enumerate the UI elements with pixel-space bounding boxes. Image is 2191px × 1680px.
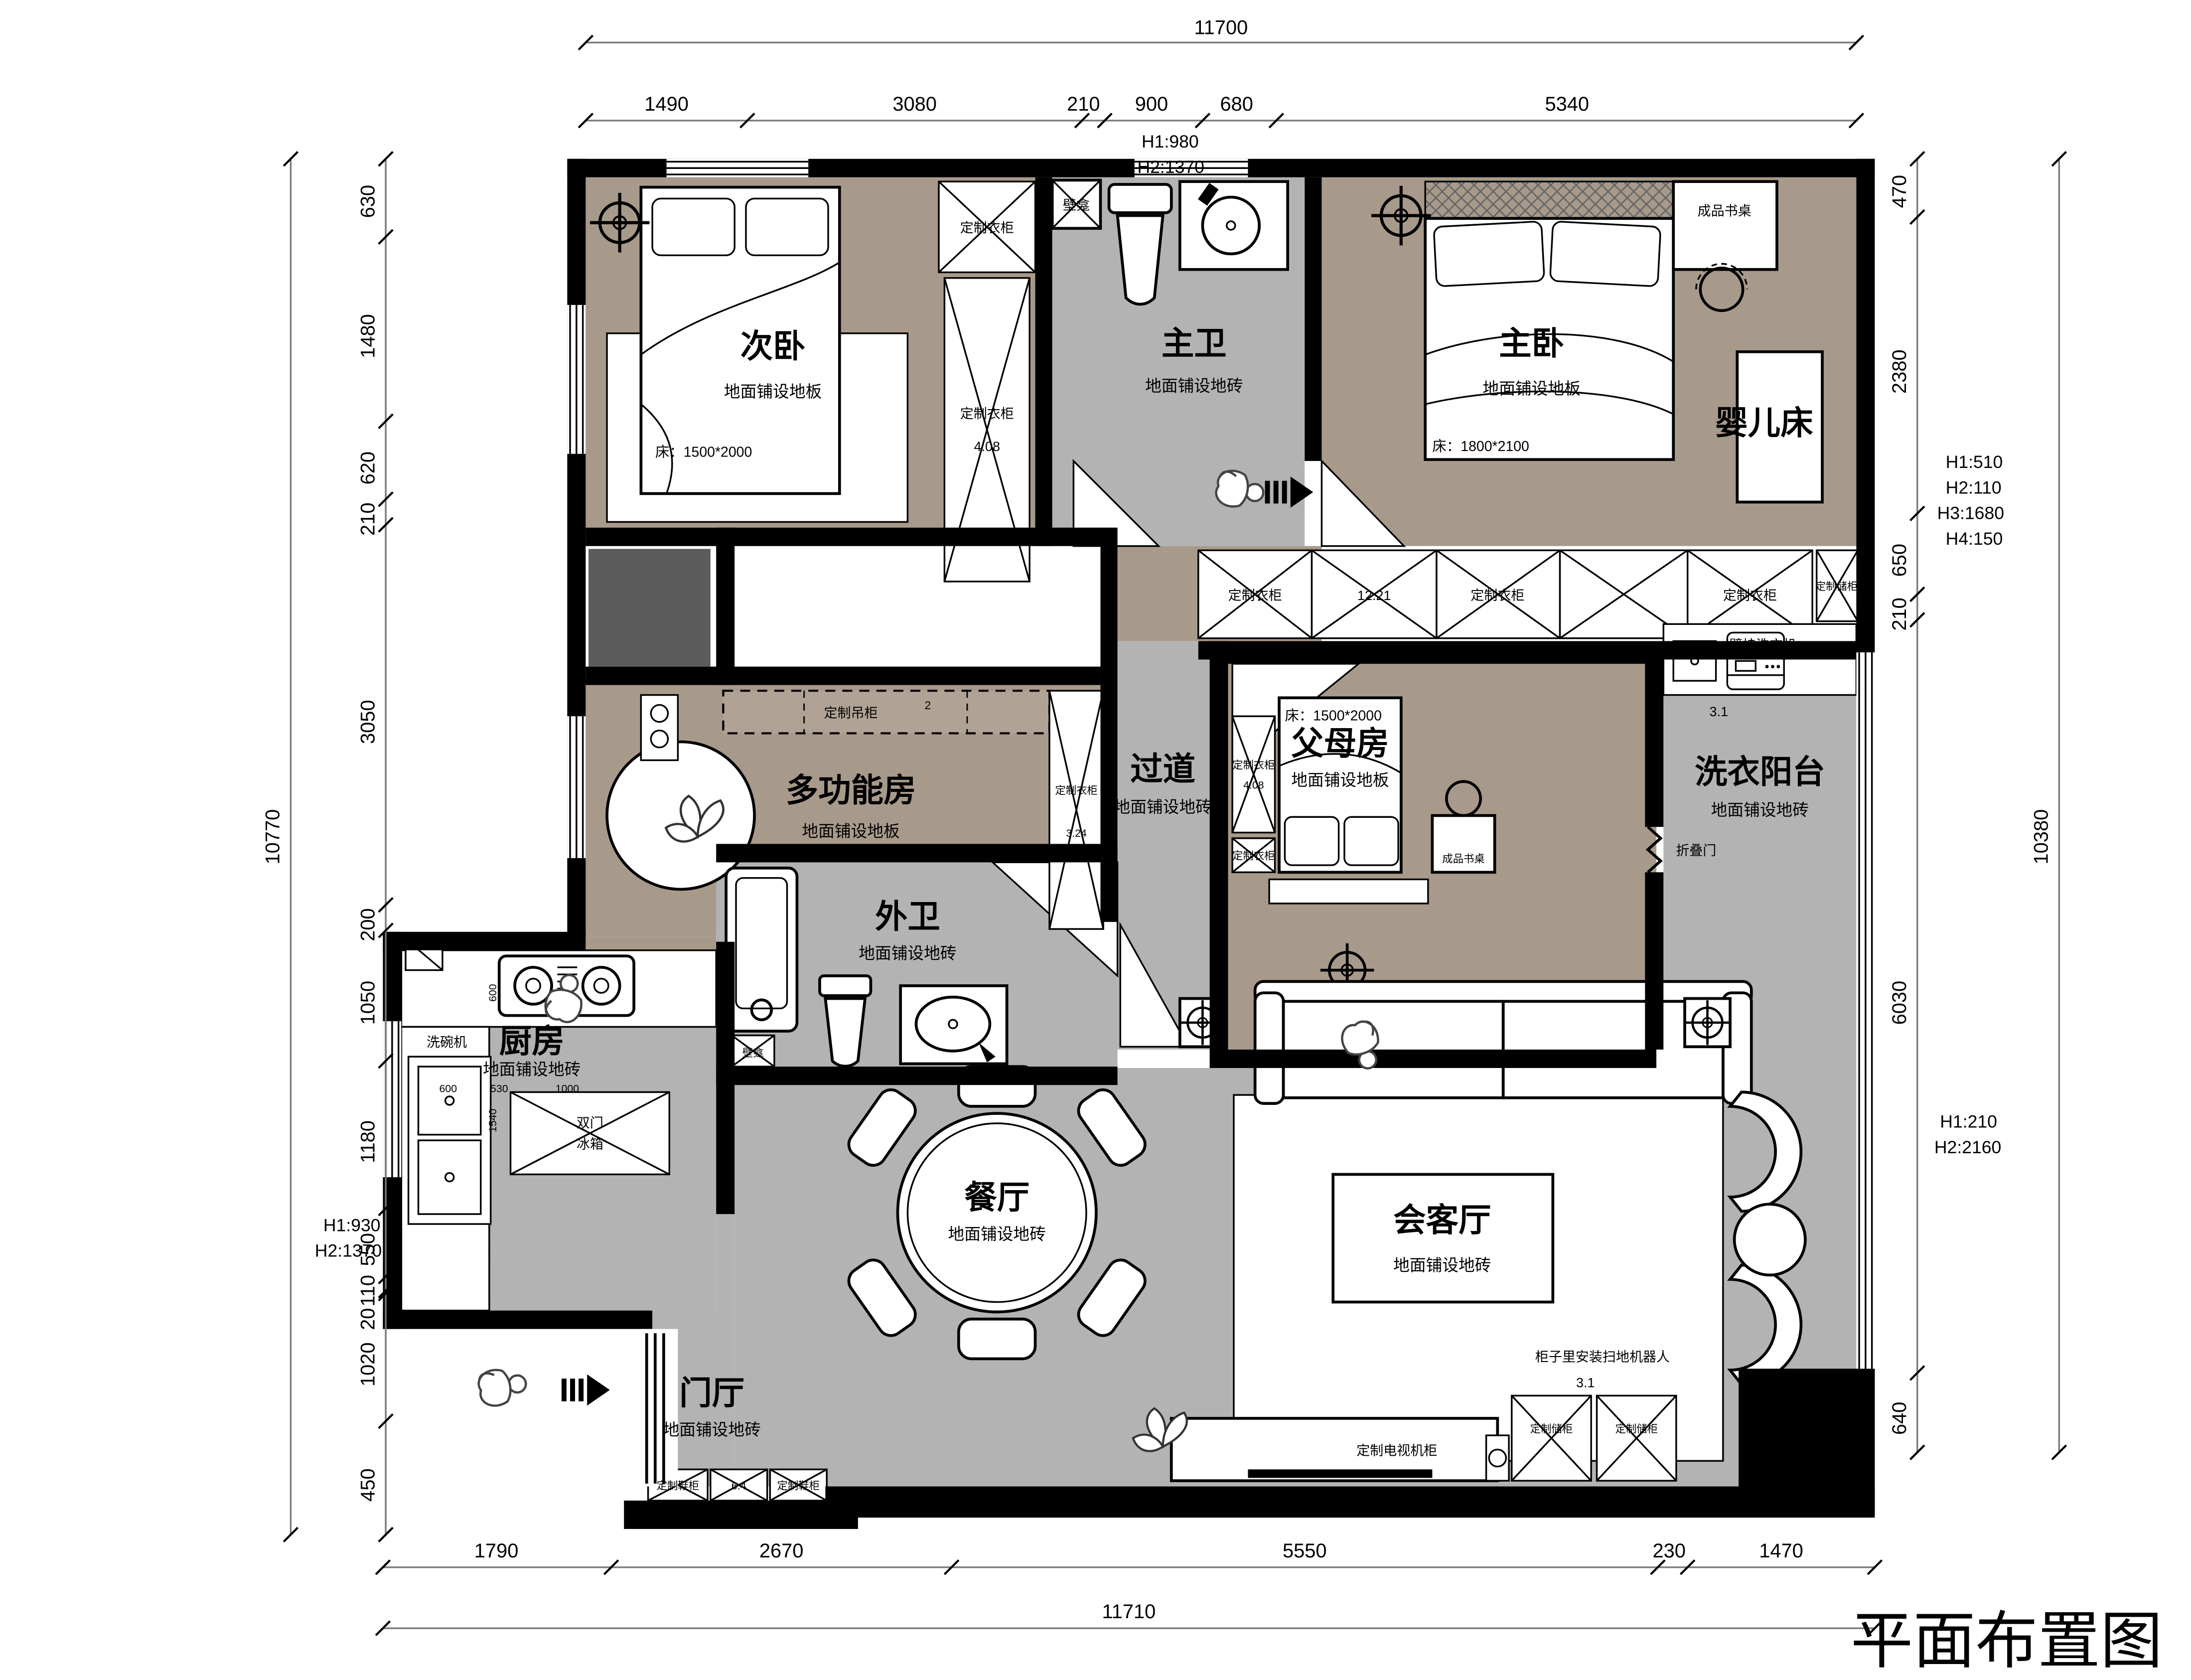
- label-wardrobe-ciwo-2: 定制衣柜: [960, 407, 1014, 422]
- dim-right-h1-1: H2:110: [1946, 477, 2002, 497]
- kdim-600a: 600: [487, 984, 499, 1002]
- label-wardrobe-duogong-area: 3.24: [1066, 827, 1087, 839]
- label-duogong-floor: 地面铺设地板: [802, 822, 899, 840]
- dim-left-10: 20: [357, 1308, 379, 1330]
- label-wardrobe-fumu-2: 定制衣柜: [1232, 850, 1275, 862]
- dim-left-3: 210: [357, 502, 379, 535]
- label-hanging-cabinet: 定制吊柜: [824, 706, 878, 721]
- drawing-title: 平面布置图: [1851, 1607, 2163, 1676]
- label-menting-floor: 地面铺设地砖: [663, 1420, 761, 1439]
- label-ciwo: 次卧: [740, 328, 806, 364]
- label-ciwo-bed: 床：1500*2000: [655, 444, 752, 460]
- dim-left-6: 1050: [357, 981, 379, 1025]
- label-huiketing: 会客厅: [1393, 1202, 1491, 1238]
- wardrobe-ciwo: [939, 181, 1035, 582]
- label-fumu-floor: 地面铺设地板: [1291, 771, 1389, 789]
- builtin-block: [588, 549, 711, 666]
- dim-bottom-1: 2670: [759, 1540, 804, 1562]
- dim-top-2: 210: [1067, 93, 1100, 115]
- dim-bottom-total: 11710: [1102, 1601, 1156, 1623]
- bed-zhuwo: [1425, 181, 1673, 459]
- dim-top-5: 5340: [1545, 93, 1589, 115]
- dim-right-1: 2380: [1889, 349, 1910, 394]
- dim-right-4: 6030: [1889, 981, 1910, 1025]
- dim-top-0: 1490: [644, 93, 689, 115]
- person-entry: [477, 1365, 529, 1408]
- label-hanging-sup: 2: [925, 699, 931, 712]
- label-canting: 餐厅: [964, 1179, 1029, 1216]
- label-wardrobe-row-3: 定制衣柜: [1723, 588, 1777, 603]
- dim-left-4: 3050: [357, 700, 379, 744]
- arrow-entry: [562, 1375, 610, 1406]
- label-fumu: 父母房: [1291, 725, 1389, 762]
- label-wardrobe-row-area: 12.21: [1357, 588, 1391, 603]
- kdim-530: 530: [490, 1082, 508, 1094]
- label-zhuwo-floor: 地面铺设地板: [1482, 379, 1580, 398]
- dim-top-h1: H1:980: [1142, 132, 1199, 152]
- label-yangtai: 洗衣阳台: [1695, 754, 1825, 790]
- dim-left-9: 110: [357, 1275, 379, 1307]
- dim-left-0: 630: [357, 185, 379, 218]
- label-niche-waiwei: 壁龛: [742, 1047, 764, 1059]
- toilet-waiwei: [820, 976, 871, 996]
- kdim-1000: 1000: [556, 1082, 580, 1094]
- label-storage-area: 3.1: [1576, 1375, 1595, 1390]
- label-guodao-floor: 地面铺设地砖: [1114, 798, 1212, 816]
- label-wardrobe-row-1: 定制衣柜: [1228, 588, 1282, 603]
- dim-bottom-0: 1790: [474, 1540, 519, 1562]
- label-dishwasher: 洗碗机: [427, 1035, 467, 1050]
- dim-left-total: 10770: [262, 809, 284, 865]
- dim-left-1: 1480: [357, 314, 379, 358]
- label-zhuwei-floor: 地面铺设地砖: [1145, 376, 1243, 395]
- label-huiketing-floor: 地面铺设地砖: [1393, 1256, 1491, 1274]
- label-ciwo-floor: 地面铺设地板: [724, 382, 822, 401]
- kdim-600b: 600: [439, 1082, 457, 1094]
- label-waiwei: 外卫: [875, 898, 940, 934]
- label-fridge-1: 双门: [577, 1116, 603, 1131]
- dim-bottom-4: 1470: [1759, 1540, 1803, 1562]
- dim-right-5: 640: [1889, 1402, 1910, 1435]
- label-storage-1: 定制储柜: [1530, 1423, 1573, 1435]
- dim-left-12: 450: [357, 1468, 379, 1501]
- dim-left-11: 1020: [357, 1343, 379, 1387]
- dim-left-5: 200: [357, 908, 379, 941]
- label-storage-2: 定制储柜: [1615, 1423, 1658, 1435]
- label-balcony-area: 3.1: [1710, 704, 1729, 719]
- hanging-cabinet: [723, 691, 1049, 733]
- label-wardrobe-ciwo-1: 定制衣柜: [960, 221, 1014, 236]
- dim-bottom-2: 5550: [1283, 1540, 1327, 1562]
- label-wardrobe-row-2: 定制衣柜: [1470, 588, 1524, 603]
- label-desk-zhuwo: 成品书桌: [1698, 204, 1752, 219]
- dim-top-h2: H2:1370: [1137, 157, 1204, 177]
- label-menting: 门厅: [679, 1375, 744, 1411]
- label-zhuwei: 主卫: [1162, 325, 1227, 361]
- label-shoe-1: 定制鞋柜: [657, 1480, 699, 1492]
- label-fumu-bed: 床：1500*2000: [1285, 708, 1381, 724]
- dim-left-h2: H2:1370: [315, 1241, 382, 1261]
- window-left-duogong: [567, 716, 585, 858]
- living-label-box: 会客厅 地面铺设地砖: [1333, 1174, 1553, 1302]
- sink-zhuwei: [1180, 181, 1288, 269]
- label-yangtai-floor: 地面铺设地砖: [1711, 800, 1809, 819]
- window-bay-right: [1856, 652, 1875, 1369]
- kdim-1540: 1540: [487, 1108, 499, 1132]
- label-fridge-2: 冰箱: [577, 1137, 603, 1152]
- label-zhuwo-bed: 床：1800*2100: [1432, 439, 1529, 455]
- toilet-zhuwei: [1109, 184, 1171, 213]
- window-left-ciwo: [567, 305, 585, 454]
- dim-right-2: 650: [1889, 544, 1910, 577]
- sofa-arm-left: [1255, 993, 1284, 1103]
- dim-left-2: 620: [357, 452, 379, 484]
- label-shoe-area: 6.4: [731, 1480, 746, 1492]
- label-robot: 柜子里安装扫地机器人: [1535, 1350, 1670, 1365]
- dim-right-h2-0: H1:210: [1940, 1112, 1997, 1132]
- label-wardrobe-ciwo-area: 4.08: [974, 439, 1000, 454]
- dim-top-1: 3080: [892, 93, 937, 115]
- side-table-round: [1735, 1204, 1805, 1275]
- label-desk-fumu: 成品书桌: [1442, 853, 1484, 865]
- dim-right-3: 210: [1889, 598, 1910, 630]
- label-wardrobe-fumu-area: 4.08: [1243, 779, 1264, 791]
- label-wall-washer: 壁挂洗衣机: [1729, 637, 1796, 652]
- dim-right-0: 470: [1889, 175, 1910, 208]
- label-waiwei-floor: 地面铺设地砖: [859, 944, 956, 962]
- dim-right-total: 10380: [2031, 809, 2052, 865]
- floor-plan: 次卧 地面铺设地板 床：1500*2000 主卫 地面铺设地砖 主卧 地面铺设地…: [0, 0, 2191, 1680]
- label-niche-zhuwei: 壁龛: [1063, 198, 1090, 213]
- dim-top-3: 900: [1135, 93, 1168, 115]
- label-storage-row: 定制储柜: [1815, 581, 1858, 593]
- label-chufang-floor: 地面铺设地砖: [483, 1060, 581, 1078]
- dim-left-h1: H1:930: [323, 1215, 381, 1235]
- dim-right-h1-2: H3:1680: [1937, 503, 2004, 523]
- floor-kitchen-doorway: [716, 1214, 734, 1311]
- label-wardrobe-duogong: 定制衣柜: [1055, 785, 1097, 797]
- dim-right-h1-3: H4:150: [1946, 529, 2003, 549]
- entry-door: [641, 1329, 678, 1487]
- label-crib: 婴儿床: [1715, 405, 1813, 441]
- label-chufang: 厨房: [499, 1023, 565, 1060]
- label-guodao: 过道: [1130, 751, 1195, 787]
- label-folding-door: 折叠门: [1676, 843, 1716, 858]
- tv: [1248, 1469, 1432, 1478]
- dim-right-h1-0: H1:510: [1946, 452, 2003, 472]
- dim-bottom-3: 230: [1652, 1540, 1685, 1562]
- label-shoe-2: 定制鞋柜: [777, 1480, 820, 1492]
- dim-left-7: 1180: [357, 1120, 379, 1163]
- dim-top-total: 11700: [1194, 16, 1248, 38]
- dim-top-4: 680: [1220, 93, 1253, 115]
- label-canting-floor: 地面铺设地砖: [948, 1224, 1046, 1243]
- label-zhuwo: 主卧: [1499, 325, 1564, 361]
- label-tv-cabinet: 定制电视机柜: [1356, 1443, 1437, 1458]
- bed-bench: [1269, 879, 1428, 903]
- label-duogong: 多功能房: [786, 772, 916, 808]
- label-wardrobe-fumu-1: 定制衣柜: [1232, 760, 1275, 771]
- dim-right-h2-1: H2:2160: [1934, 1137, 2001, 1157]
- window-top-ciwo: [667, 159, 809, 177]
